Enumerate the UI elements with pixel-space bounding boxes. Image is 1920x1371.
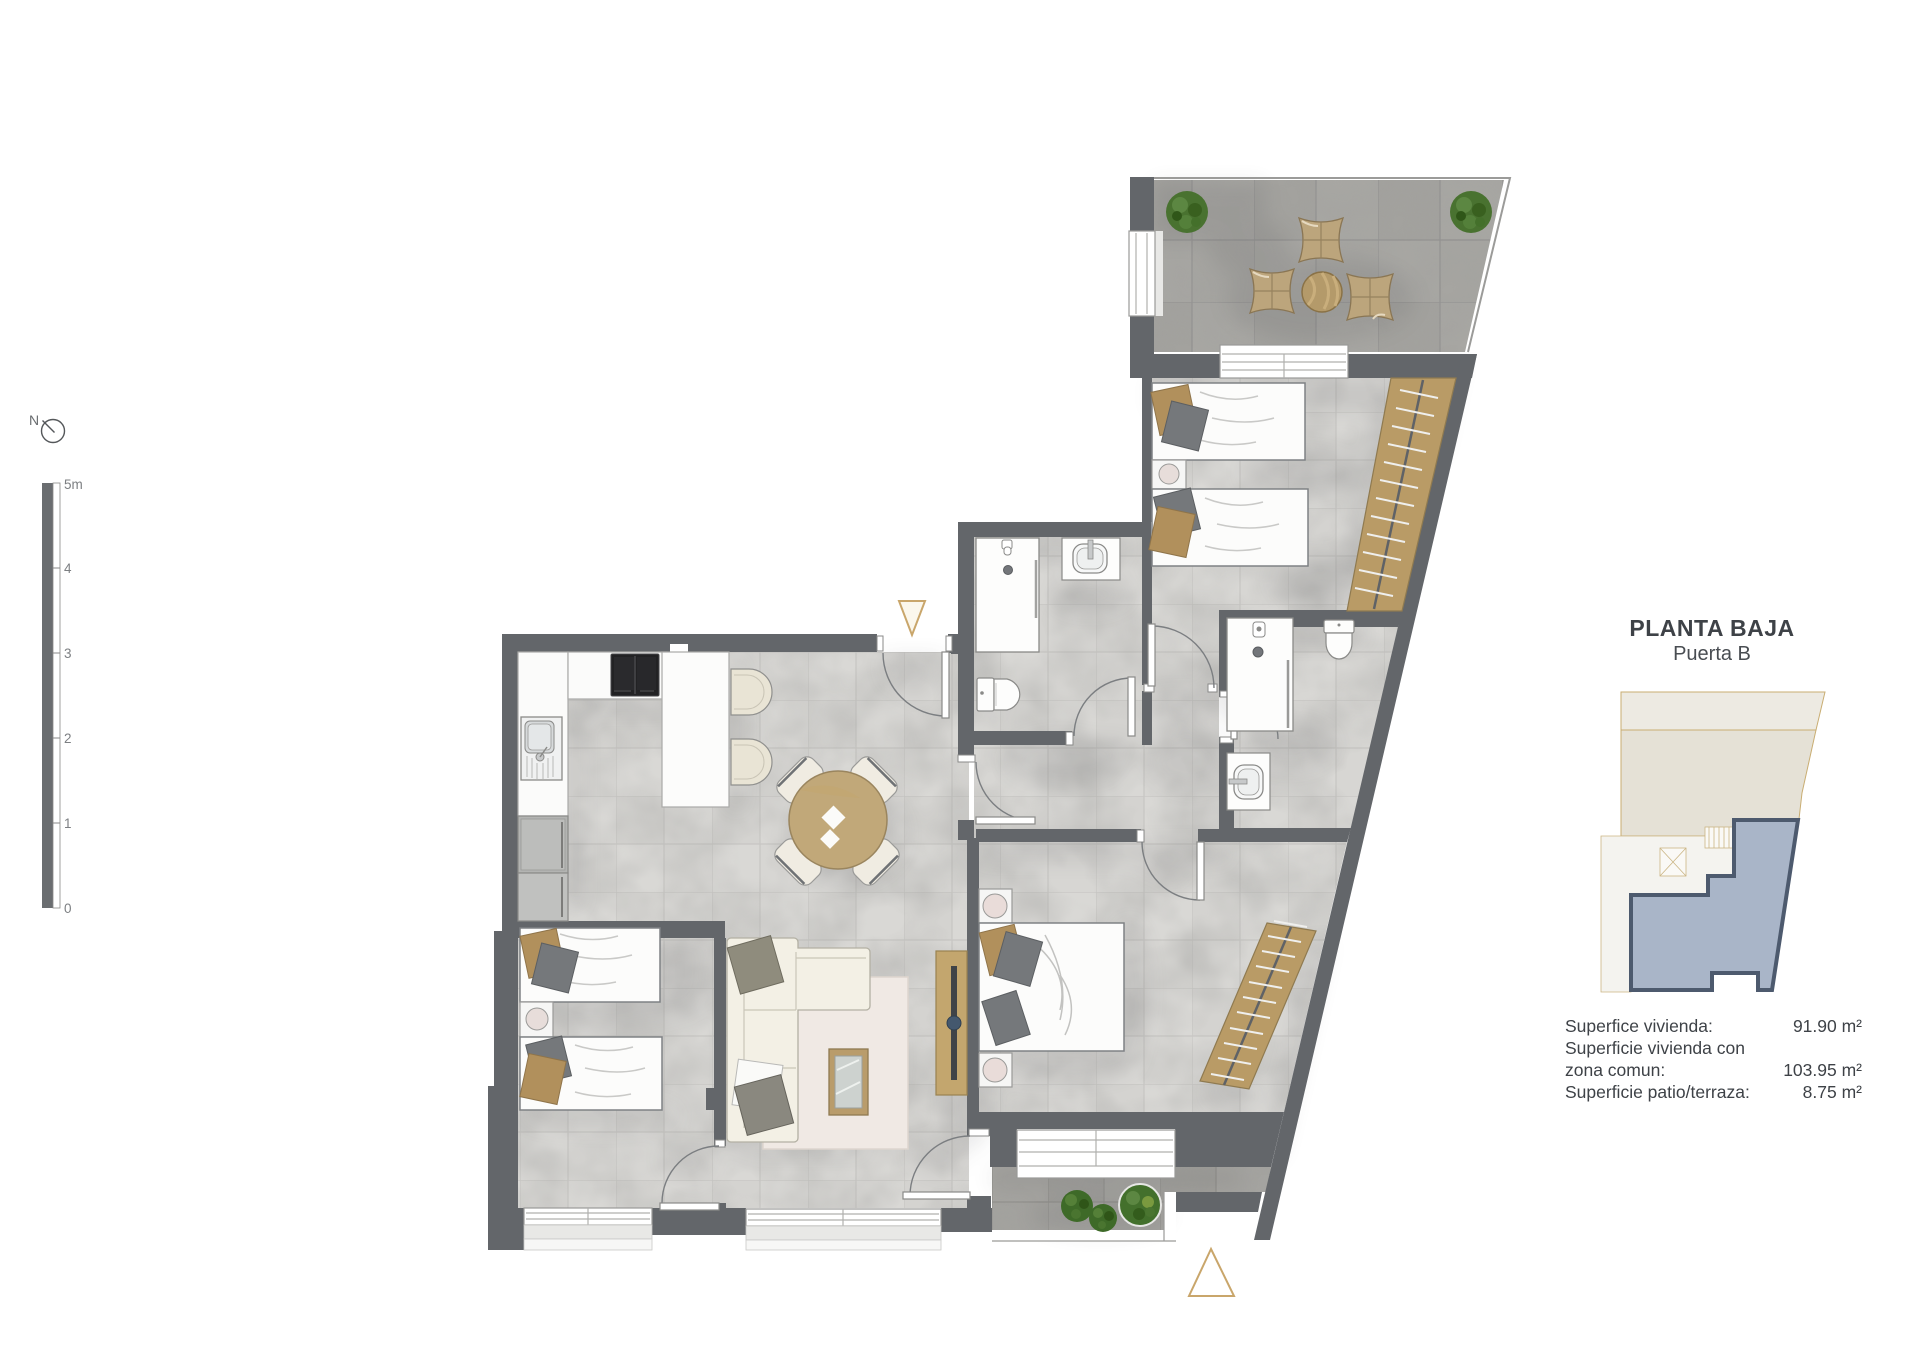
svg-text:3: 3 (64, 646, 72, 661)
svg-text:1: 1 (64, 816, 72, 831)
svg-text:0: 0 (64, 901, 72, 916)
svg-text:91.90 m²: 91.90 m² (1793, 1016, 1862, 1036)
svg-text:Puerta B: Puerta B (1673, 643, 1751, 665)
svg-text:Superficie patio/terraza:: Superficie patio/terraza: (1565, 1082, 1750, 1102)
svg-text:2: 2 (64, 731, 72, 746)
svg-text:N: N (29, 412, 39, 428)
svg-text:Superficie vivienda con: Superficie vivienda con (1565, 1038, 1745, 1058)
svg-text:zona comun:: zona comun: (1565, 1060, 1665, 1080)
svg-text:5m: 5m (64, 477, 83, 492)
svg-text:8.75 m²: 8.75 m² (1803, 1082, 1862, 1102)
svg-text:4: 4 (64, 561, 72, 576)
svg-text:Superfice vivienda:: Superfice vivienda: (1565, 1016, 1713, 1036)
svg-text:PLANTA BAJA: PLANTA BAJA (1629, 615, 1794, 641)
svg-text:103.95 m²: 103.95 m² (1783, 1060, 1862, 1080)
